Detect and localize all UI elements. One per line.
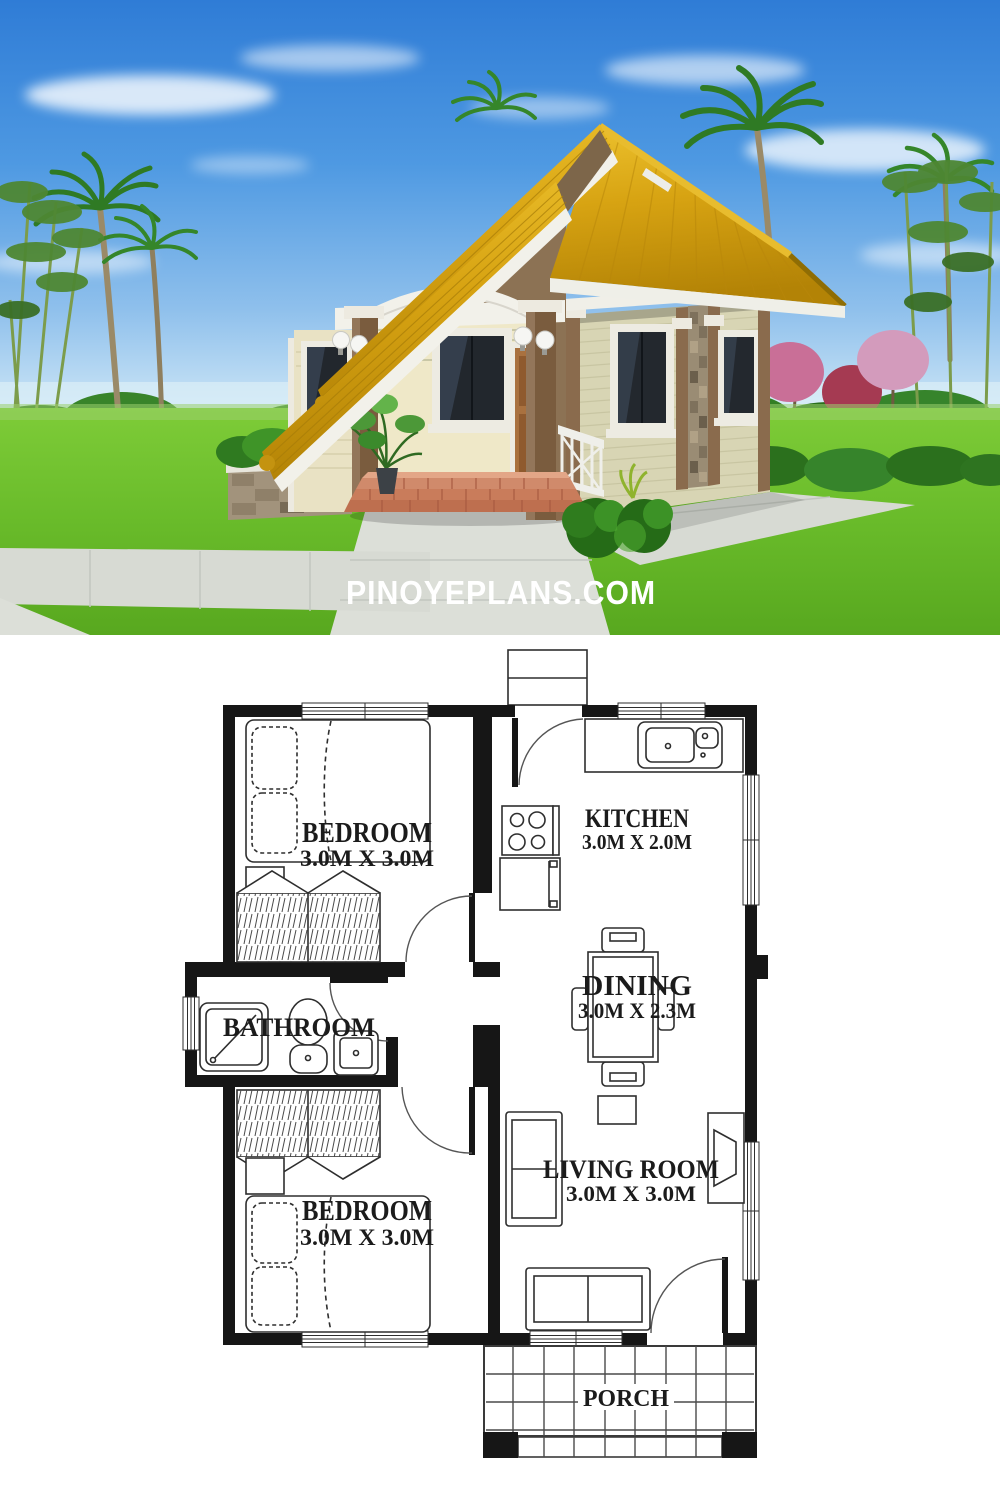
house-render: PINOYEPLANS.COM <box>0 0 1000 635</box>
room-size-kitchen: 3.0M X 2.0M <box>582 830 692 854</box>
window-living-right <box>743 1142 759 1280</box>
room-label-bedroom-top: BEDROOM <box>302 818 432 849</box>
window-bathroom-left <box>183 997 199 1050</box>
kitchen-cabinet <box>500 858 560 910</box>
side-table <box>598 1096 636 1124</box>
room-size-bedroom-bottom: 3.0M X 3.0M <box>300 1225 434 1250</box>
room-label-living: LIVING ROOM <box>543 1155 719 1184</box>
window-kitchen-top <box>618 703 705 719</box>
right-window-1 <box>606 324 678 438</box>
window-kitchen-right <box>743 775 759 905</box>
window-living-bottom <box>530 1331 622 1347</box>
kitchen-counter-sink <box>585 719 743 772</box>
room-size-living: 3.0M X 3.0M <box>566 1181 696 1206</box>
loveseat <box>526 1268 650 1330</box>
room-label-bathroom: BATHROOM <box>223 1013 375 1042</box>
room-size-bedroom-top: 3.0M X 3.0M <box>300 846 434 871</box>
kitchen-stove <box>502 806 559 855</box>
nightstand-bottom <box>246 1158 284 1194</box>
porch-window <box>428 328 516 433</box>
house-photo-section: PINOYEPLANS.COM <box>0 0 1000 635</box>
room-label-bedroom-bottom: BEDROOM <box>302 1196 432 1227</box>
floor-plan-section: BEDROOM 3.0M X 3.0M KITCHEN 3.0M X 2.0M … <box>0 635 1000 1500</box>
kitchen-stoop <box>508 650 587 705</box>
floor-plan: BEDROOM 3.0M X 3.0M KITCHEN 3.0M X 2.0M … <box>0 635 1000 1500</box>
watermark-text: PINOYEPLANS.COM <box>346 574 656 611</box>
room-label-porch: PORCH <box>583 1386 669 1412</box>
corner-pilaster <box>758 297 770 492</box>
right-window-2 <box>714 330 764 426</box>
window-bedroom-top <box>302 703 428 719</box>
window-bedroom-bottom <box>302 1331 428 1347</box>
stone-accent-strip <box>672 304 724 490</box>
room-label-kitchen: KITCHEN <box>585 804 689 833</box>
room-size-dining: 3.0M X 2.3M <box>578 998 696 1023</box>
